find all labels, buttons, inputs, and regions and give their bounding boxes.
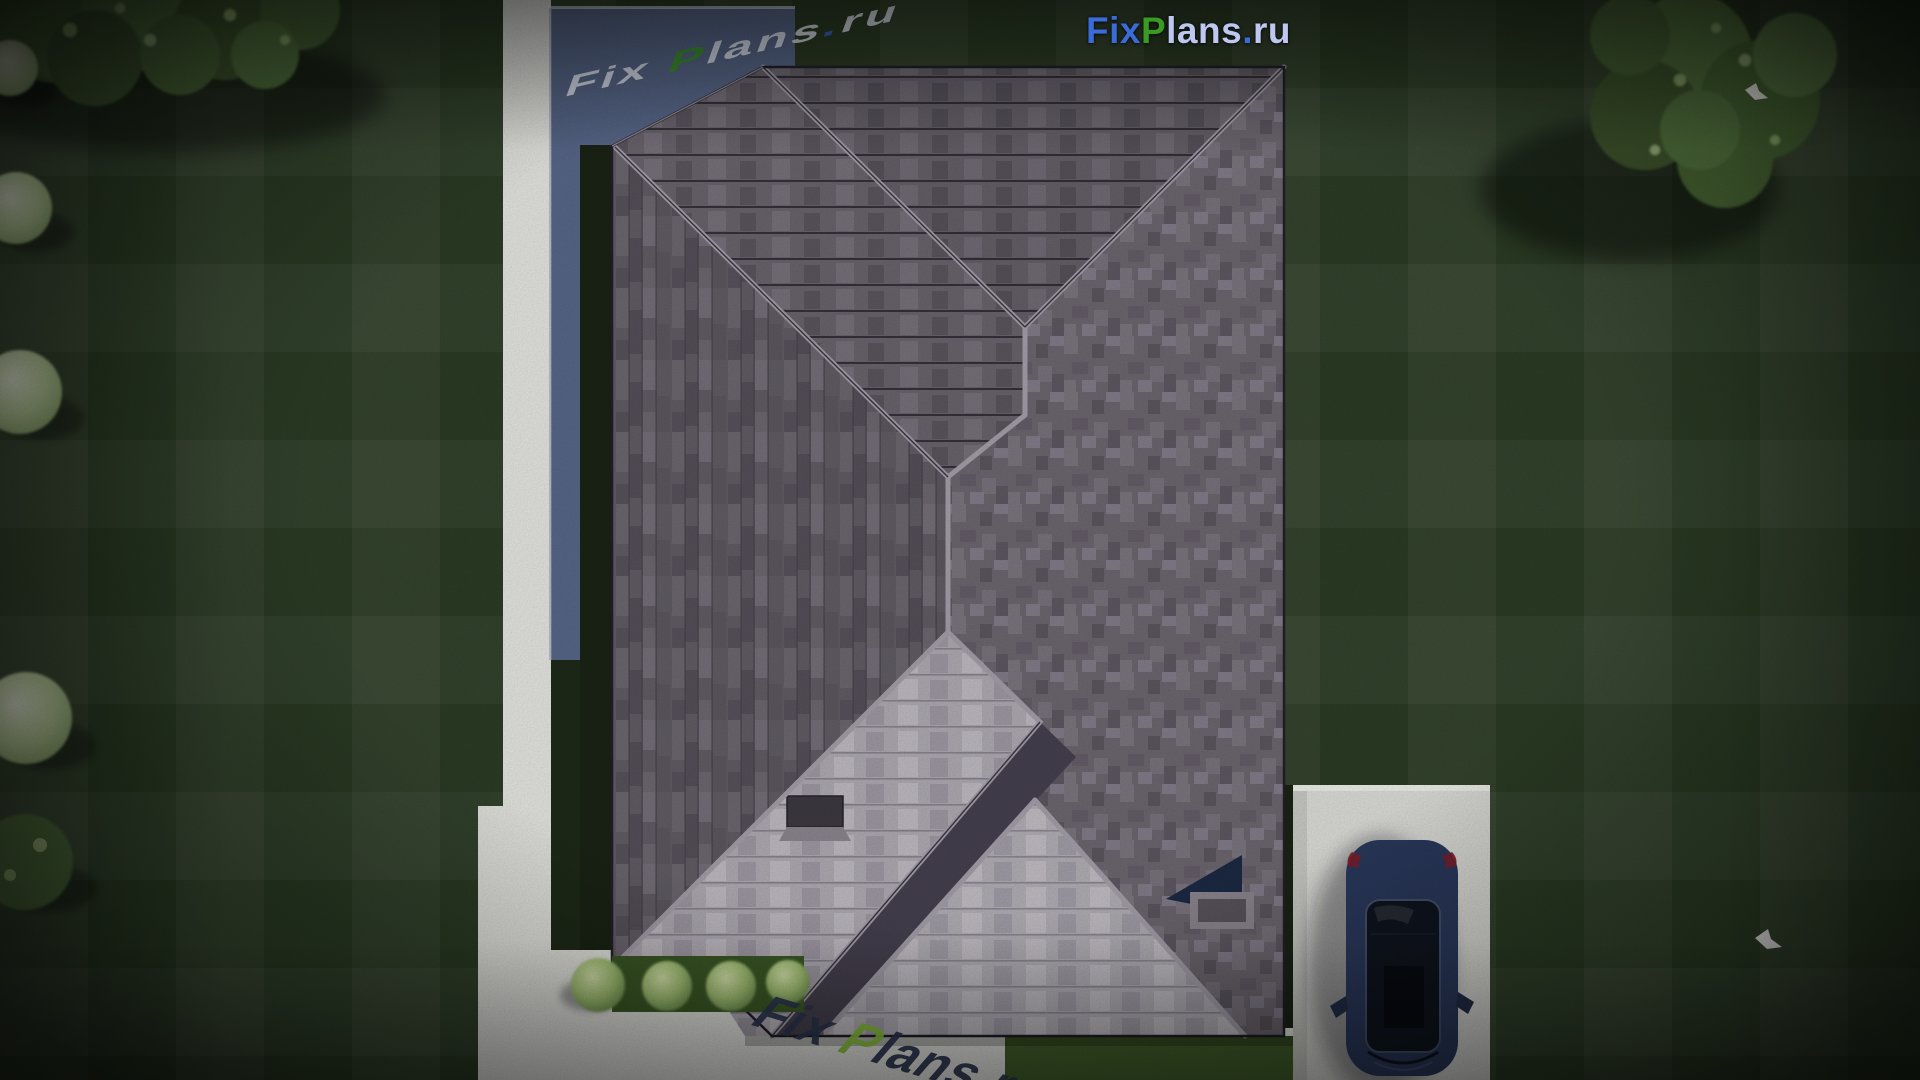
grain-overlay: [0, 0, 1920, 1080]
logo-part-p: P: [1141, 10, 1166, 51]
logo-part-ru: ru: [1253, 10, 1291, 51]
logo-part-dot: .: [1242, 10, 1253, 51]
logo-part-lans: lans: [1166, 10, 1242, 51]
scene-canvas: Fix Plans.ru: [0, 0, 1920, 1080]
fixplans-logo-link[interactable]: FixPlans.ru: [1086, 10, 1291, 52]
logo-part-fix: Fix: [1086, 10, 1141, 51]
aerial-render-scene: Fix Plans.ru: [0, 0, 1920, 1080]
